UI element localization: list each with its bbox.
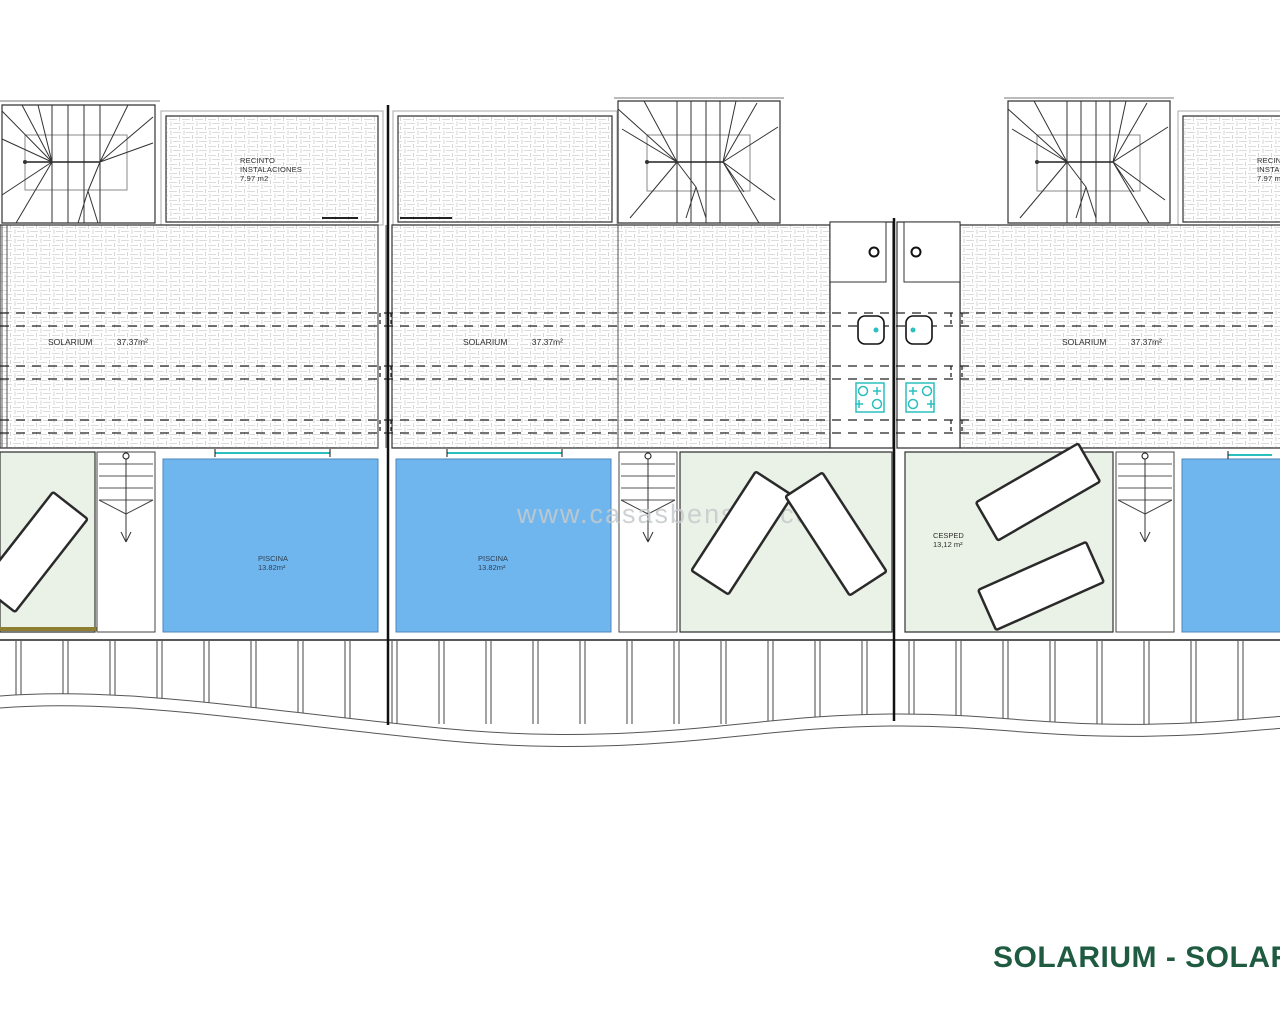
recinto-line1: RECINTO [1257, 156, 1280, 165]
solarium-label-right: SOLARIUM 37.37m² [1062, 337, 1162, 347]
sink-tap-icon [874, 328, 879, 333]
cooktop-icon [855, 383, 884, 412]
sink-icon [906, 316, 932, 344]
recinto-label-right: RECINTO INSTALACIONES 7.97 m2 [1257, 156, 1280, 183]
counter-drain-icon [870, 248, 879, 257]
piscina-name: PISCINA [258, 554, 288, 563]
recinto-instalaciones-mid [393, 111, 617, 225]
piscina-label-left: PISCINA 13.82m² [258, 554, 288, 572]
cesped-area: 13,12 m² [933, 540, 964, 549]
piscina-name: PISCINA [478, 554, 508, 563]
solarium-area-mid [392, 225, 830, 448]
stair-to-pool-mid [619, 452, 677, 632]
stair-to-pool-right [1116, 452, 1174, 632]
solarium-name: SOLARIUM [48, 337, 92, 347]
boundary-fence [0, 640, 1280, 780]
piscina-area: 13.82m² [258, 563, 288, 572]
solarium-label-left: SOLARIUM 37.37m² [48, 337, 148, 347]
solarium-area-value: 37.37m² [117, 337, 148, 347]
stair-unit-right [1004, 98, 1174, 223]
stair-to-pool-left [97, 452, 155, 632]
counter-drain-icon [912, 248, 921, 257]
stair-unit-mid [614, 98, 784, 223]
recinto-label-left: RECINTO INSTALACIONES 7.97 m2 [240, 156, 302, 183]
sink-tap-icon [911, 328, 916, 333]
solarium-label-mid: SOLARIUM 37.37m² [463, 337, 563, 347]
solarium-name: SOLARIUM [1062, 337, 1106, 347]
lawn-edge-strip [0, 627, 98, 631]
recinto-area: 7.97 m2 [1257, 174, 1280, 183]
recinto-line2: INSTALACIONES [240, 165, 302, 174]
recinto-line2: INSTALACIONES [1257, 165, 1280, 174]
solarium-area-value: 37.37m² [532, 337, 563, 347]
cooktop-icon [906, 383, 935, 412]
floor-plan-page: www.casasbenson.com RECINTO INSTALACIONE… [0, 0, 1280, 1024]
recinto-area: 7.97 m2 [240, 174, 302, 183]
page-title: SOLARIUM - SOLARIUM [993, 941, 1280, 975]
solarium-area-value: 37.37m² [1131, 337, 1162, 347]
pool-left [163, 449, 378, 632]
piscina-area: 13.82m² [478, 563, 508, 572]
cesped-label: CESPED 13,12 m² [933, 531, 964, 549]
solarium-name: SOLARIUM [463, 337, 507, 347]
cesped-name: CESPED [933, 531, 964, 540]
pool-right [1182, 451, 1280, 632]
piscina-label-mid: PISCINA 13.82m² [478, 554, 508, 572]
stair-unit-left [0, 101, 160, 223]
pool-mid [396, 449, 611, 632]
plan-drawing: www.casasbenson.com [0, 0, 1280, 1024]
recinto-line1: RECINTO [240, 156, 302, 165]
sink-icon [858, 316, 884, 344]
